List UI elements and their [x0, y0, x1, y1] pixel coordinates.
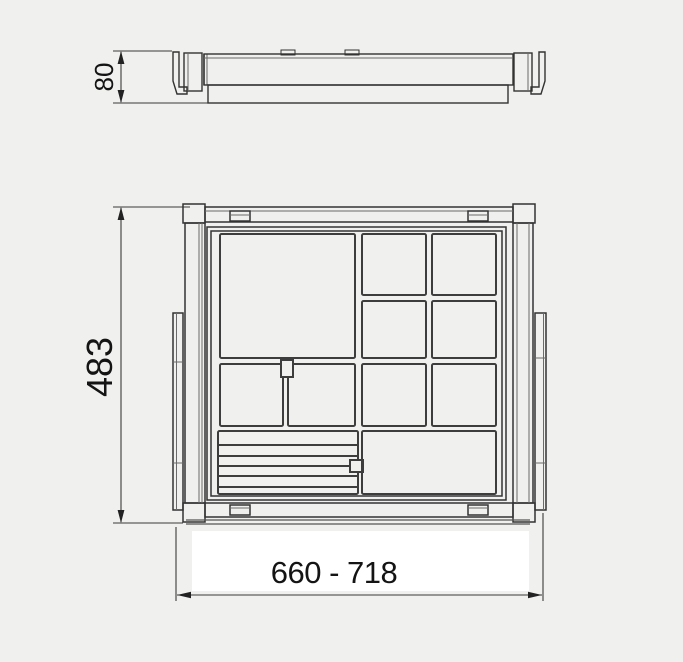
- corner-block-bottom-left: [183, 503, 205, 522]
- compartment-row3-col2: [432, 364, 496, 426]
- drawer-body-profile: [208, 85, 508, 103]
- arrow-down-icon: [118, 90, 125, 103]
- right-mounting-rail: [535, 313, 546, 510]
- compartment-row3-left-a: [220, 364, 283, 426]
- compartment-row1-col1: [362, 234, 426, 295]
- divider-clip: [281, 360, 293, 377]
- front-rail: [204, 54, 513, 85]
- compartment-row2-col2: [432, 301, 496, 358]
- compartment-large-bottom-right: [362, 431, 496, 494]
- arrow-left-icon: [177, 592, 191, 598]
- arrow-down-icon: [118, 510, 125, 523]
- left-bracket-body: [184, 53, 202, 91]
- bottom-rail: [205, 503, 513, 517]
- top-rail-clip-left: [230, 211, 250, 221]
- right-bracket-body: [514, 53, 532, 91]
- dimension-483: [113, 207, 190, 523]
- dimension-label-side-height: 80: [90, 47, 118, 107]
- technical-drawing-canvas: 80 483 660 - 718: [0, 0, 683, 662]
- arrow-up-icon: [118, 207, 125, 220]
- compartment-large-top-left: [220, 234, 355, 358]
- side-view: [113, 50, 545, 103]
- compartment-row3-col1: [362, 364, 426, 426]
- arrow-right-icon: [528, 592, 542, 598]
- top-rail-clip-right: [468, 211, 488, 221]
- dimension-80: [113, 51, 209, 103]
- dimension-label-depth: 483: [80, 307, 120, 427]
- plan-view: [113, 204, 546, 601]
- right-hanger-hook: [531, 52, 545, 94]
- compartment-row1-col2: [432, 234, 496, 295]
- bottom-rail-clip-left: [230, 505, 250, 515]
- left-mounting-rail: [173, 313, 183, 510]
- corner-block-top-right: [513, 204, 535, 223]
- dimension-label-width-range: 660 - 718: [204, 555, 464, 589]
- right-frame-member: [513, 223, 533, 503]
- top-rail: [205, 207, 513, 222]
- left-hanger-hook: [173, 52, 187, 94]
- compartment-row3-left-b: [288, 364, 355, 426]
- compartment-row2-col1: [362, 301, 426, 358]
- knife-block: [218, 431, 363, 494]
- corner-block-bottom-right: [513, 503, 535, 522]
- bottom-rail-clip-right: [468, 505, 488, 515]
